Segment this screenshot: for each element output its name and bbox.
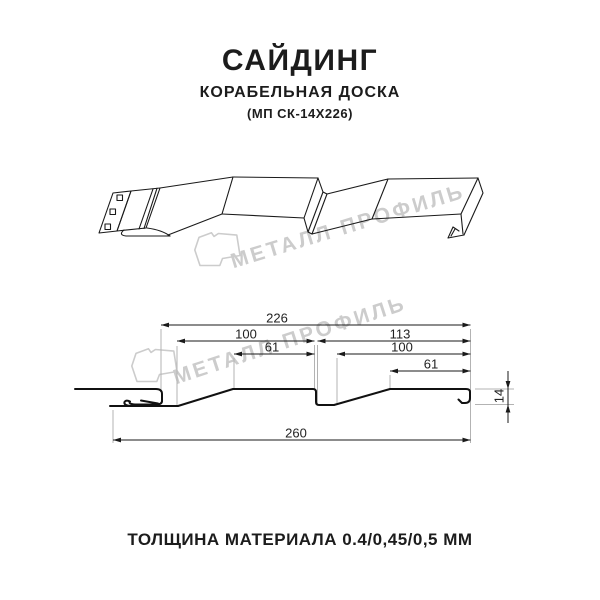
dim-100-right-label: 100 — [391, 341, 413, 354]
material-thickness-note: ТОЛЩИНА МАТЕРИАЛА 0.4/0,45/0,5 ММ — [0, 530, 600, 550]
dim-61-right-label: 61 — [424, 358, 438, 371]
dim-260-label: 260 — [285, 427, 307, 440]
dimension-lines — [113, 325, 508, 440]
dim-100-left-label: 100 — [235, 328, 257, 341]
panel-3d-sketch — [99, 177, 483, 238]
dim-61-left-label: 61 — [265, 341, 279, 354]
extension-lines — [113, 329, 514, 443]
dim-226-label: 226 — [266, 312, 288, 325]
dim-14-label: 14 — [493, 389, 506, 403]
drawing-canvas — [0, 0, 600, 600]
panel-cross-section — [75, 389, 470, 406]
product-drawing-page: САЙДИНГ КОРАБЕЛЬНАЯ ДОСКА (МП СК-14Х226)… — [0, 0, 600, 600]
